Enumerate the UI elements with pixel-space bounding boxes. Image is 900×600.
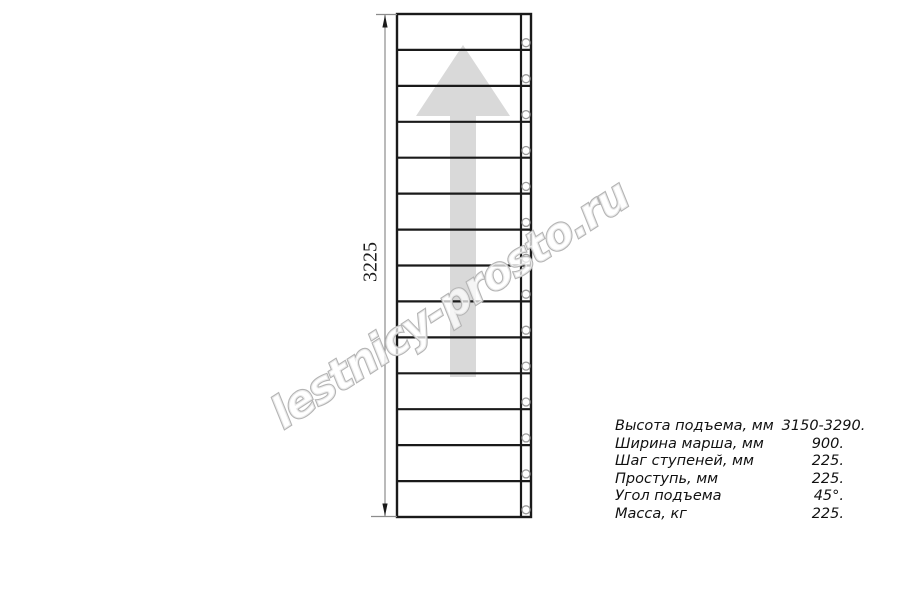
baluster-circle	[522, 506, 530, 514]
spec-value: 225.	[812, 471, 844, 489]
dimension-arrowhead-up	[382, 15, 387, 28]
spec-row-width: Ширина марша, мм 900.	[615, 436, 844, 454]
baluster-circle	[522, 111, 530, 119]
spec-row-mass: Масса, кг 225.	[615, 506, 844, 524]
dimension-label: 3225	[360, 242, 382, 282]
stair-drawing-canvas: 3225 lestnicy-prosto.ru Высота подъема, …	[0, 0, 900, 600]
baluster-circle	[522, 39, 530, 47]
spec-row-step-pitch: Шаг ступеней, мм 225.	[615, 453, 844, 471]
specs-table: Высота подъема, мм 3150-3290. Ширина мар…	[615, 418, 844, 523]
dimension-arrowhead-down	[382, 504, 387, 517]
baluster-circle	[522, 254, 530, 262]
baluster-circles	[522, 39, 530, 514]
spec-value: 900.	[812, 436, 844, 454]
spec-row-tread: Проступь, мм 225.	[615, 471, 844, 489]
spec-row-angle: Угол подъема 45°.	[615, 488, 844, 506]
spec-label: Шаг ступеней, мм	[615, 453, 754, 471]
dimension-height: 3225	[360, 15, 397, 517]
baluster-circle	[522, 218, 530, 226]
spec-label: Проступь, мм	[615, 471, 718, 489]
baluster-circle	[522, 470, 530, 478]
spec-label: Масса, кг	[615, 506, 687, 524]
direction-up-arrow	[416, 45, 510, 377]
baluster-circle	[522, 434, 530, 442]
baluster-circle	[522, 398, 530, 406]
baluster-circle	[522, 362, 530, 370]
spec-value: 45°.	[814, 488, 844, 506]
baluster-circle	[522, 290, 530, 298]
baluster-circle	[522, 182, 530, 190]
spec-label: Ширина марша, мм	[615, 436, 764, 454]
spec-row-height: Высота подъема, мм 3150-3290.	[615, 418, 844, 436]
spec-label: Высота подъема, мм	[615, 418, 774, 436]
spec-value: 225.	[812, 453, 844, 471]
baluster-circle	[522, 75, 530, 83]
spec-value: 3150-3290.	[782, 418, 866, 436]
baluster-circle	[522, 326, 530, 334]
spec-label: Угол подъема	[615, 488, 722, 506]
spec-value: 225.	[812, 506, 844, 524]
baluster-circle	[522, 147, 530, 155]
